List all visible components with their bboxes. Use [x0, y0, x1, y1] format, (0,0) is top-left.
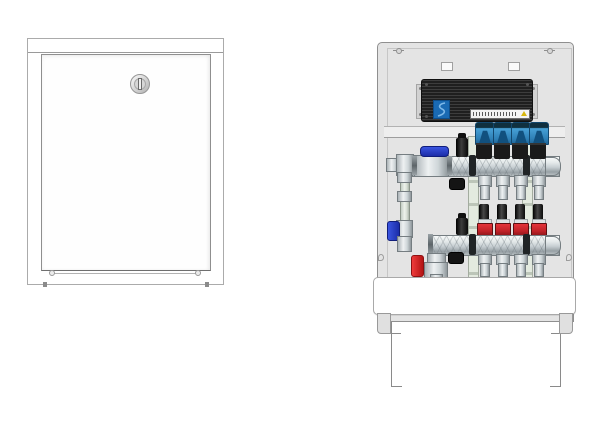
- flow-meter-4-knob: [533, 204, 543, 219]
- lower-outlet-1-tube: [480, 263, 490, 277]
- upper-end-cap: [545, 157, 561, 176]
- actuator-3-base: [512, 143, 528, 159]
- lower-outlet-4-tube: [534, 263, 544, 277]
- ball-valve-handle-blue: [420, 146, 449, 157]
- actuator-2-base: [494, 143, 510, 159]
- lower-outlet-2-tube: [498, 263, 508, 277]
- flow-meter-2-knob: [497, 204, 507, 219]
- upper-drain-knob: [449, 178, 465, 190]
- actuator-4-base: [530, 143, 546, 159]
- lower-air-vent: [456, 218, 468, 235]
- leg-left-foot: [391, 386, 402, 387]
- closed-cabinet-view: [27, 38, 224, 285]
- lower-drain-knob: [448, 252, 464, 264]
- warning-triangle-icon: [521, 111, 527, 116]
- door-hinge-right: [205, 282, 209, 287]
- flow-meter-3-knob: [515, 204, 525, 219]
- actuator-1-base: [476, 143, 492, 159]
- door-lock-icon: [130, 74, 150, 94]
- knockout-slot-left: [441, 62, 453, 71]
- lower-union-nut: [428, 234, 433, 255]
- upper-outlet-4-tube: [534, 185, 544, 200]
- lower-end-cap: [545, 236, 561, 255]
- warning-label: [470, 109, 530, 119]
- lower-clamp-right: [523, 234, 530, 255]
- flow-meter-1-knob: [479, 204, 489, 219]
- riser-bottom-fitting: [397, 236, 412, 252]
- bottom-rail-line: [51, 273, 199, 274]
- side-screw-slot-left: [378, 254, 384, 261]
- upper-clamp-left: [469, 155, 476, 176]
- open-cabinet-view: [373, 42, 576, 392]
- leg-right-foot: [550, 386, 561, 387]
- bottom-screw-right: [195, 270, 201, 276]
- upper-outlet-1-tube: [480, 185, 490, 200]
- union-ring-1: [412, 156, 417, 175]
- union-ring-2: [447, 156, 452, 175]
- side-screw-slot-right: [566, 254, 572, 261]
- upper-outlet-3-tube: [516, 185, 526, 200]
- fill-drain-valve-red: [411, 255, 424, 277]
- upper-outlet-2-tube: [498, 185, 508, 200]
- lower-clamp-left: [469, 234, 476, 255]
- figure-canvas: [0, 0, 600, 424]
- brand-logo-icon: [433, 100, 450, 119]
- riser-union-1: [397, 172, 412, 183]
- mounting-screw-icon-right: [546, 48, 553, 53]
- door-hinge-left: [43, 282, 47, 287]
- bottom-screw-left: [49, 270, 55, 276]
- upper-air-vent: [456, 138, 468, 157]
- cabinet-door: [41, 54, 211, 271]
- side-wall-tab-left: [377, 313, 391, 334]
- knockout-slot-right: [508, 62, 520, 71]
- actuator-3: [511, 122, 531, 145]
- side-wall-tab-right: [559, 313, 573, 334]
- mounting-screw-icon-left: [395, 48, 402, 53]
- lock-slot: [138, 78, 142, 90]
- main-ball-valve-body: [414, 155, 449, 177]
- cabinet-top-rail-line: [28, 52, 223, 53]
- actuator-1: [475, 122, 495, 145]
- riser-union-2: [397, 191, 412, 202]
- actuator-4: [529, 122, 549, 145]
- leg-left-line: [391, 316, 392, 387]
- wiring-connection-box: [421, 79, 533, 122]
- actuator-2: [493, 122, 513, 145]
- lower-outlet-3-tube: [516, 263, 526, 277]
- leg-left-notch: [391, 333, 401, 334]
- front-cover-bar: [373, 277, 576, 315]
